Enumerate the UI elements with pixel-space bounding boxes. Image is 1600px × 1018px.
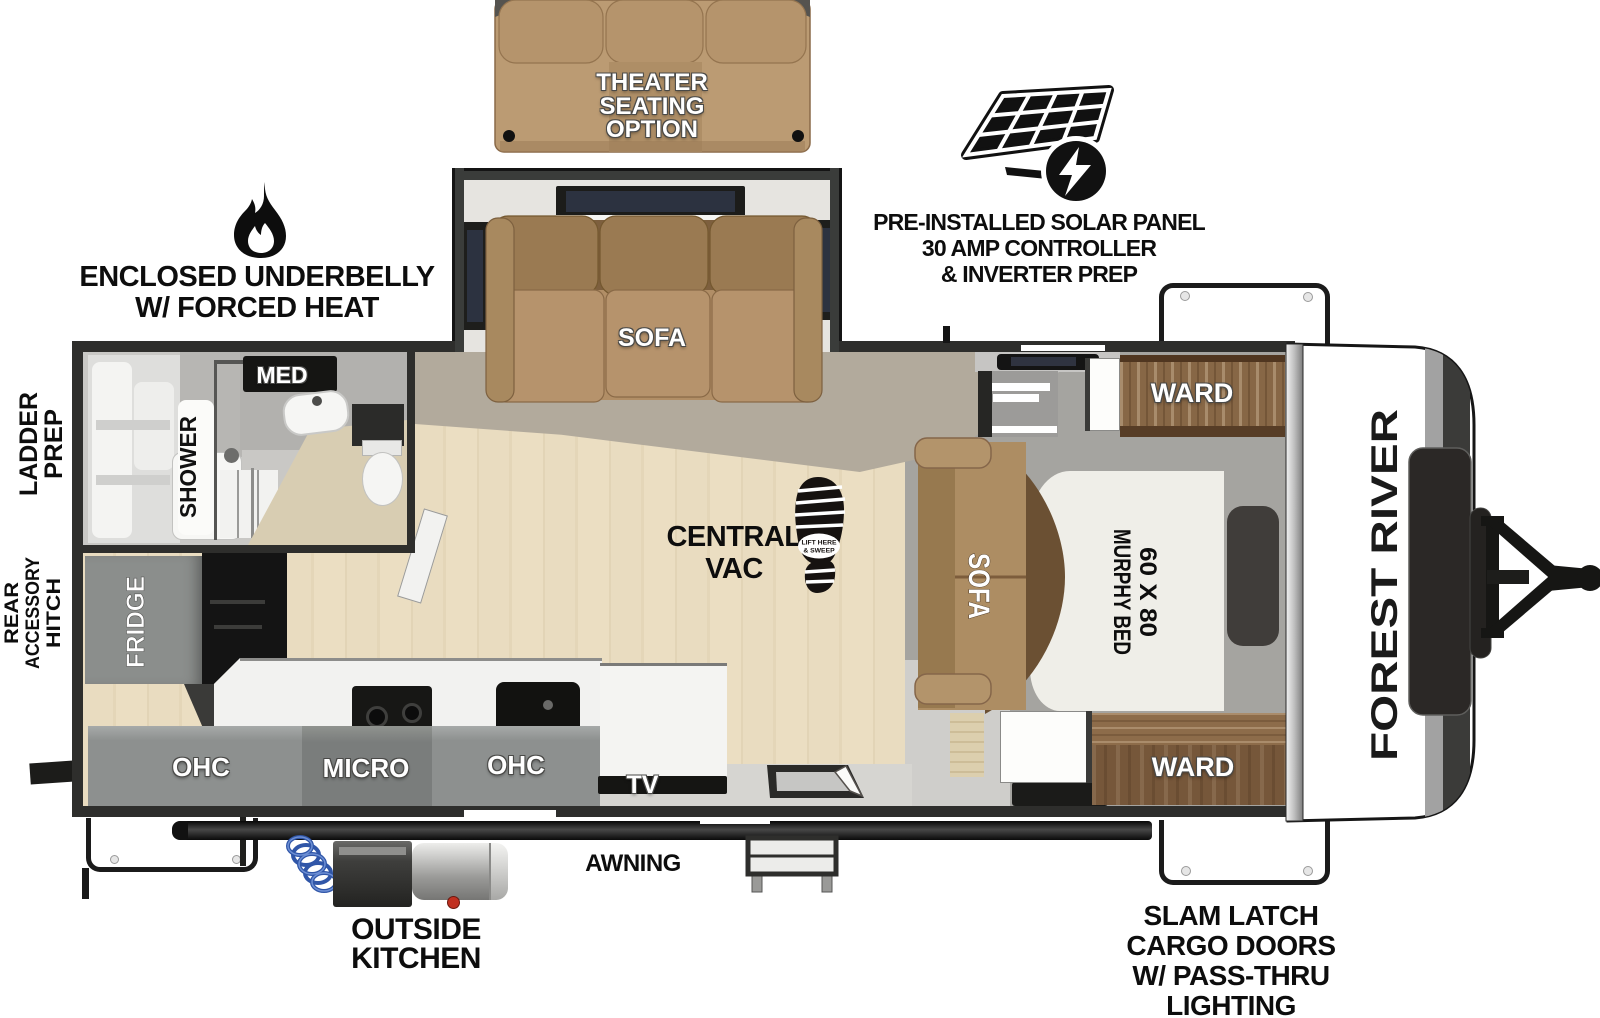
svg-text:MURPHY BED: MURPHY BED bbox=[1108, 529, 1135, 655]
svg-text:PREP: PREP bbox=[40, 409, 68, 479]
svg-text:LADDER: LADDER bbox=[15, 392, 43, 496]
svg-text:SHOWER: SHOWER bbox=[175, 416, 201, 518]
svg-text:HITCH: HITCH bbox=[44, 578, 65, 648]
svg-text:FRIDGE: FRIDGE bbox=[122, 576, 150, 668]
svg-text:REAR: REAR bbox=[2, 582, 23, 644]
svg-text:ACCESSORY: ACCESSORY bbox=[23, 557, 44, 669]
svg-text:60 X 80: 60 X 80 bbox=[1134, 547, 1161, 637]
svg-text:SOFA: SOFA bbox=[962, 553, 995, 619]
